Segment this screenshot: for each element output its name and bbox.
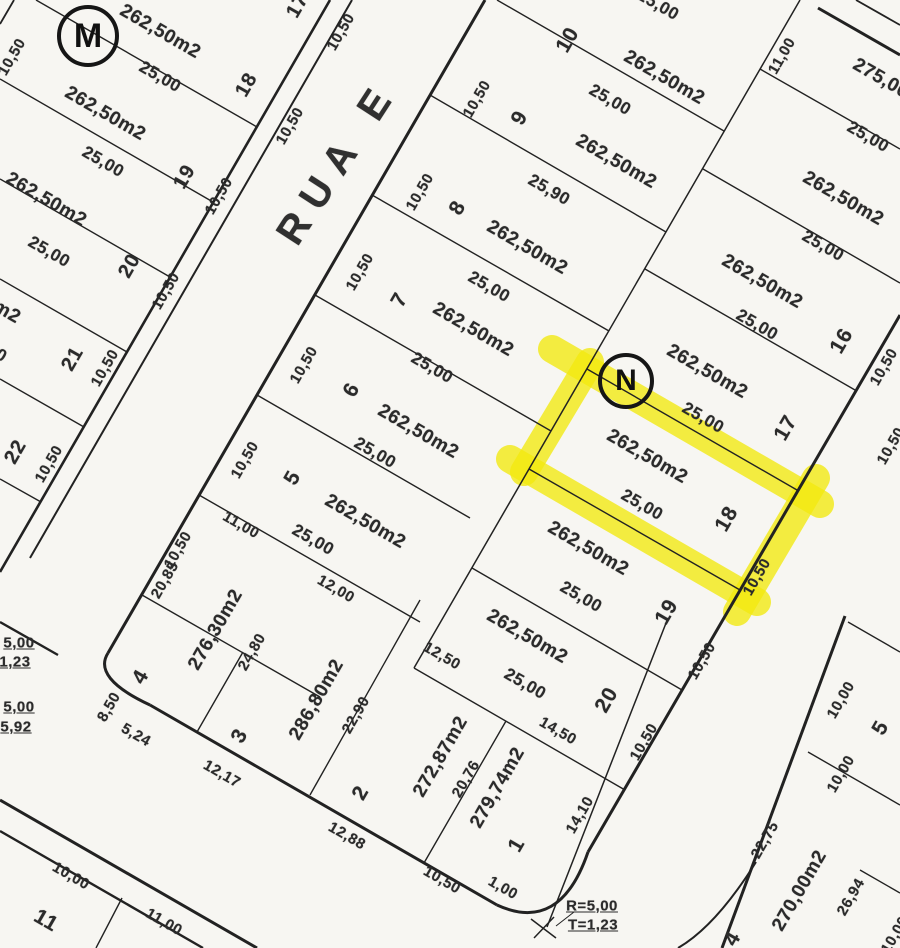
- boundary-line: [856, 0, 900, 25]
- radius-note: 5,00: [3, 635, 34, 652]
- corner-curve: [678, 862, 756, 948]
- block-marker-m: M: [57, 5, 119, 67]
- boundary-line: [0, 379, 84, 427]
- boundary-line: [848, 622, 900, 652]
- radius-note: T=1,23: [568, 917, 618, 934]
- radius-note: R=5,00: [566, 898, 618, 915]
- radius-note: 5,92: [0, 719, 31, 736]
- boundary-line: [30, 0, 352, 558]
- boundary-line: [547, 618, 668, 927]
- boundary-line: [0, 479, 41, 502]
- highlight-stroke: [524, 362, 590, 472]
- boundary-line: [860, 870, 900, 893]
- plat-map: 1710,50262,50m225,001810,5010,50262,50m2…: [0, 0, 900, 948]
- boundary-line: [0, 0, 14, 24]
- boundary-line: [818, 8, 900, 55]
- radius-note: 5,00: [3, 699, 34, 716]
- block-marker-n: N: [598, 353, 654, 409]
- radius-note: 1,23: [0, 654, 31, 671]
- boundary-line: [96, 898, 122, 948]
